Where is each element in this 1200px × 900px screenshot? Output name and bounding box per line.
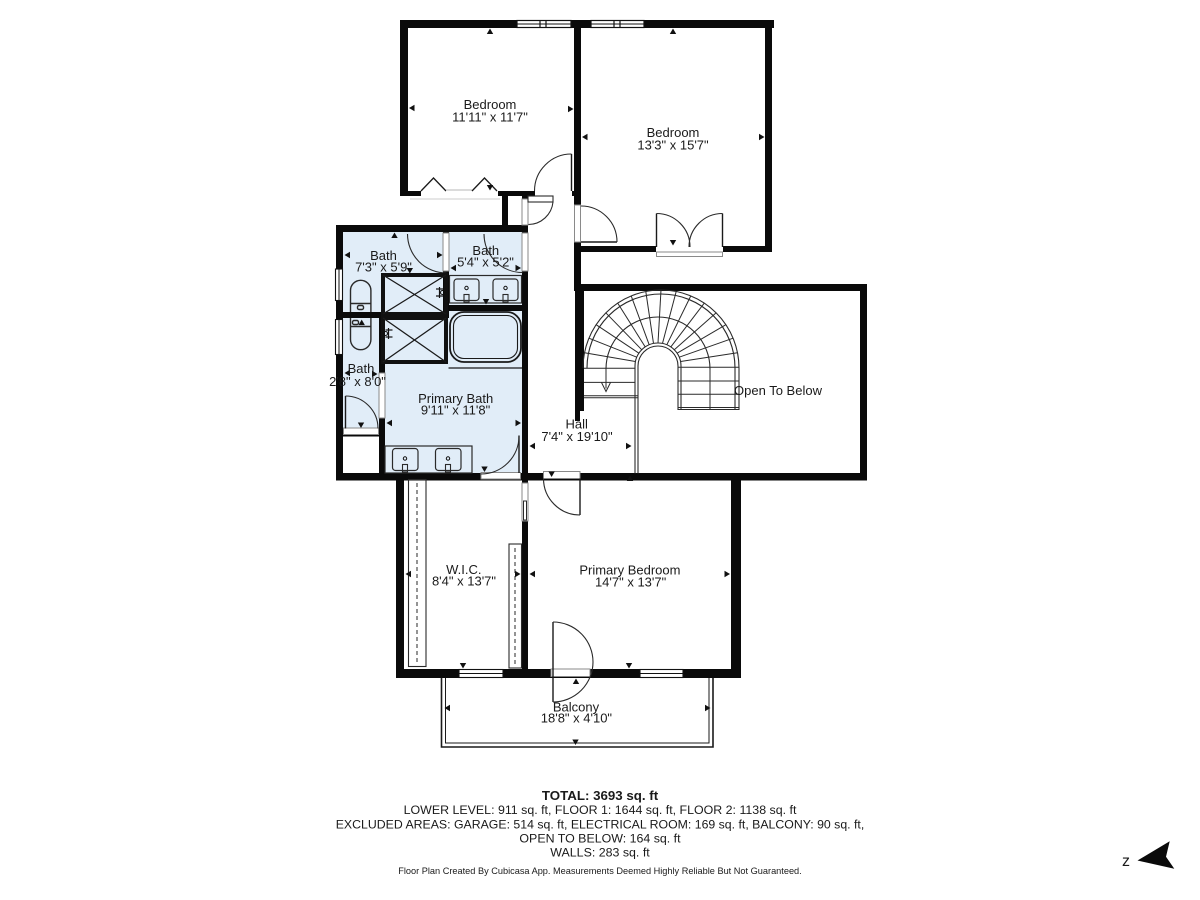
svg-text:7'3" x 5'9": 7'3" x 5'9" [355, 259, 412, 274]
svg-text:EXCLUDED AREAS: GARAGE: 514 sq: EXCLUDED AREAS: GARAGE: 514 sq. ft, ELEC… [336, 818, 865, 832]
svg-text:13'3" x 15'7": 13'3" x 15'7" [637, 137, 709, 152]
svg-text:9'11" x 11'8": 9'11" x 11'8" [421, 403, 491, 418]
svg-text:7'4" x 19'10": 7'4" x 19'10" [541, 429, 613, 444]
svg-text:18'8" x 4'10": 18'8" x 4'10" [541, 710, 613, 725]
svg-text:14'7" x 13'7": 14'7" x 13'7" [595, 574, 667, 589]
svg-text:LOWER LEVEL: 911 sq. ft, FLOOR: LOWER LEVEL: 911 sq. ft, FLOOR 1: 1644 s… [404, 803, 797, 817]
svg-text:5'4" x 5'2": 5'4" x 5'2" [457, 255, 514, 270]
svg-text:8'4" x 13'7": 8'4" x 13'7" [432, 574, 496, 589]
svg-text:Floor Plan Created By Cubicasa: Floor Plan Created By Cubicasa App. Meas… [398, 866, 801, 876]
svg-text:11'11" x 11'7": 11'11" x 11'7" [452, 109, 528, 124]
svg-text:z: z [1122, 853, 1130, 870]
svg-text:2'8" x 8'0": 2'8" x 8'0" [329, 374, 386, 389]
svg-text:OPEN TO BELOW: 164 sq. ft: OPEN TO BELOW: 164 sq. ft [519, 832, 681, 846]
svg-text:TOTAL: 3693 sq. ft: TOTAL: 3693 sq. ft [542, 788, 659, 803]
svg-text:Open To Below: Open To Below [734, 383, 823, 398]
svg-text:WALLS: 283 sq. ft: WALLS: 283 sq. ft [550, 846, 650, 860]
